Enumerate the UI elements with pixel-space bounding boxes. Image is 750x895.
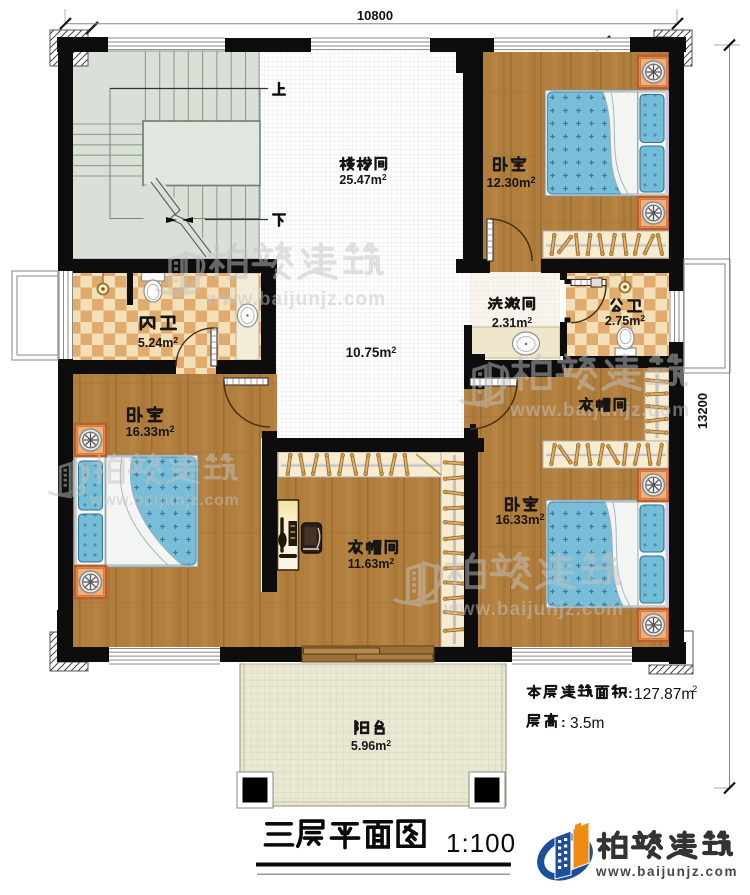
- svg-text:2.31m2: 2.31m2: [492, 315, 532, 330]
- svg-text:11.63m2: 11.63m2: [348, 556, 395, 571]
- svg-text:3.5m: 3.5m: [570, 715, 604, 732]
- svg-text:www.baijunjz.com: www.baijunjz.com: [595, 864, 738, 879]
- svg-text:12.30m2: 12.30m2: [486, 175, 535, 190]
- svg-text:10800: 10800: [357, 8, 393, 23]
- svg-text::: :: [628, 685, 633, 701]
- svg-text::: :: [561, 714, 566, 730]
- svg-text:16.33m2: 16.33m2: [495, 512, 544, 527]
- svg-text:2.75m2: 2.75m2: [605, 313, 645, 328]
- svg-text:16.33m2: 16.33m2: [125, 424, 174, 439]
- svg-text:1:100: 1:100: [446, 828, 516, 858]
- svg-text:2: 2: [692, 684, 697, 695]
- svg-text:25.47m2: 25.47m2: [339, 172, 386, 187]
- svg-text:5.24m2: 5.24m2: [138, 335, 178, 350]
- svg-text:127.87m: 127.87m: [634, 686, 694, 703]
- svg-text:13200: 13200: [695, 393, 710, 429]
- svg-text:5.96m2: 5.96m2: [351, 738, 391, 753]
- svg-text:10.75m2: 10.75m2: [346, 345, 397, 360]
